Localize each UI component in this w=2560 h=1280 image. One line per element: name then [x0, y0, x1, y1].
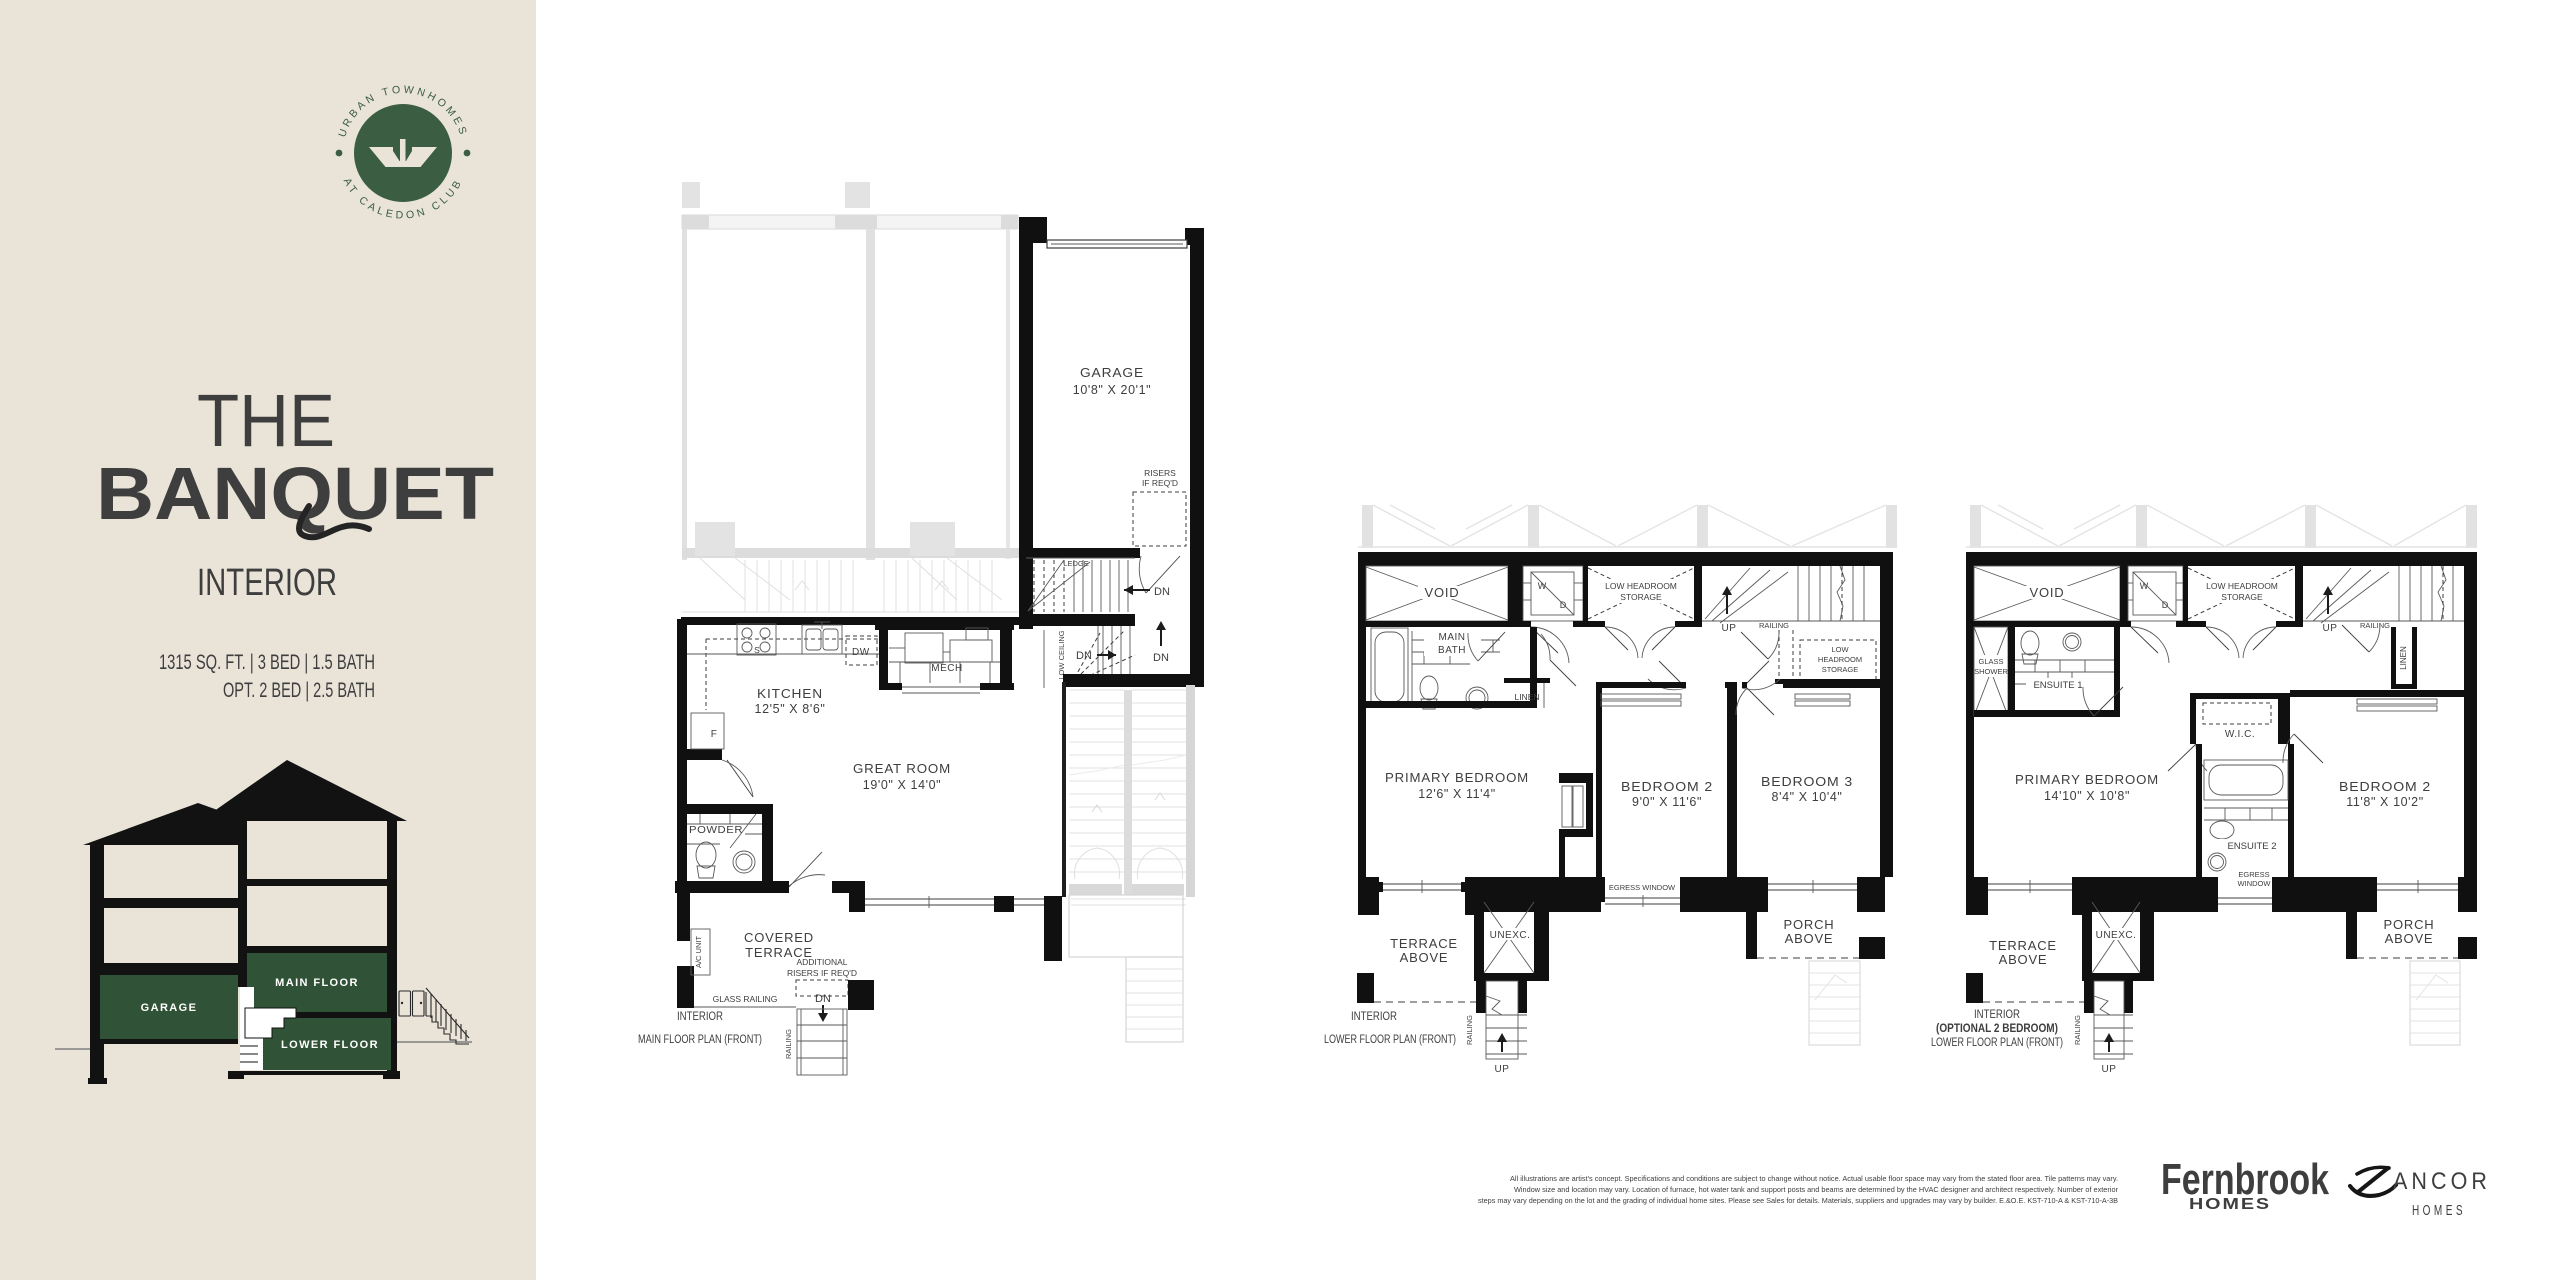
svg-text:INTERIOR: INTERIOR — [1351, 1011, 1397, 1023]
svg-text:HOMES: HOMES — [2189, 1196, 2271, 1213]
svg-text:ABOVE: ABOVE — [2385, 931, 2434, 946]
svg-text:DN: DN — [1076, 650, 1092, 662]
svg-text:RAILING: RAILING — [2073, 1015, 2082, 1045]
svg-text:STORAGE: STORAGE — [1822, 665, 1859, 674]
svg-text:BEDROOM 3: BEDROOM 3 — [1761, 774, 1853, 789]
svg-text:S: S — [754, 645, 760, 655]
svg-text:KITCHEN: KITCHEN — [757, 686, 823, 701]
svg-text:ENSUITE 1: ENSUITE 1 — [2033, 680, 2082, 691]
svg-text:TERRACE: TERRACE — [1989, 938, 2057, 953]
svg-text:ANCOR: ANCOR — [2393, 1168, 2491, 1195]
svg-text:POWDER: POWDER — [689, 825, 743, 836]
svg-text:W: W — [2140, 581, 2149, 591]
svg-text:HEADROOM: HEADROOM — [1818, 655, 1862, 664]
svg-text:LOW HEADROOM: LOW HEADROOM — [2206, 581, 2278, 591]
svg-text:ENSUITE 2: ENSUITE 2 — [2227, 841, 2276, 852]
svg-text:LEDGE: LEDGE — [1063, 559, 1088, 568]
svg-text:RAILING: RAILING — [1465, 1015, 1474, 1045]
svg-text:A/C UNIT: A/C UNIT — [694, 936, 703, 969]
svg-text:W: W — [1538, 581, 1547, 591]
svg-text:LOWER FLOOR PLAN (FRONT): LOWER FLOOR PLAN (FRONT) — [1931, 1037, 2063, 1049]
svg-text:D: D — [1560, 600, 1567, 610]
svg-text:UNEXC.: UNEXC. — [1490, 930, 1531, 941]
svg-text:RISERS IF REQ'D: RISERS IF REQ'D — [787, 968, 857, 978]
svg-text:GREAT ROOM: GREAT ROOM — [853, 761, 951, 776]
svg-text:STORAGE: STORAGE — [1620, 592, 1662, 602]
svg-text:BANQUET: BANQUET — [96, 452, 494, 535]
svg-text:WINDOW: WINDOW — [2238, 879, 2272, 888]
svg-text:BEDROOM 2: BEDROOM 2 — [1621, 779, 1713, 794]
svg-text:ABOVE: ABOVE — [1999, 952, 2048, 967]
svg-text:PORCH: PORCH — [2384, 917, 2435, 932]
svg-text:D: D — [2162, 600, 2169, 610]
svg-text:F: F — [711, 729, 718, 740]
svg-text:IF REQ'D: IF REQ'D — [1142, 478, 1178, 488]
svg-text:1315 SQ. FT. | 3 BED | 1.5: 1315 SQ. FT. | 3 BED | 1.5 BATH — [159, 651, 375, 674]
svg-text:ADDITIONAL: ADDITIONAL — [796, 957, 847, 967]
svg-text:(OPTIONAL 2 BEDROOM): (OPTIONAL 2 BEDROOM) — [1936, 1023, 2058, 1035]
svg-text:GARAGE: GARAGE — [141, 1002, 198, 1014]
svg-text:BEDROOM 2: BEDROOM 2 — [2339, 779, 2431, 794]
svg-text:GARAGE: GARAGE — [1080, 365, 1144, 380]
svg-text:LINEN: LINEN — [2399, 646, 2408, 670]
svg-text:9'0" X 11'6": 9'0" X 11'6" — [1632, 795, 1702, 809]
svg-text:DW: DW — [852, 647, 870, 658]
svg-text:HOMES: HOMES — [2412, 1203, 2466, 1219]
svg-text:INTERIOR: INTERIOR — [1974, 1009, 2020, 1021]
svg-text:UNEXC.: UNEXC. — [2096, 930, 2137, 941]
svg-text:DN: DN — [1154, 586, 1170, 598]
svg-text:12'6" X 11'4": 12'6" X 11'4" — [1418, 787, 1496, 801]
svg-text:EGRESS: EGRESS — [2238, 870, 2269, 879]
svg-text:W.I.C.: W.I.C. — [2225, 729, 2255, 740]
svg-text:19'0" X 14'0": 19'0" X 14'0" — [863, 778, 941, 792]
svg-text:VOID: VOID — [2030, 585, 2065, 600]
svg-text:All illustrations are artist's: All illustrations are artist's concept. … — [1510, 1174, 2118, 1183]
svg-text:12'5" X 8'6": 12'5" X 8'6" — [755, 702, 826, 716]
svg-text:LOW CEILING: LOW CEILING — [1057, 630, 1066, 679]
svg-text:OPT. 2 BED | 2.5 BATH: OPT. 2 BED | 2.5 BATH — [223, 679, 375, 702]
svg-text:THE: THE — [197, 379, 335, 462]
svg-text:INTERIOR: INTERIOR — [197, 562, 337, 604]
svg-text:UP: UP — [1722, 623, 1737, 634]
svg-text:COVERED: COVERED — [744, 930, 814, 945]
svg-text:DN: DN — [815, 993, 831, 1005]
svg-text:TERRACE: TERRACE — [1390, 936, 1458, 951]
svg-text:ABOVE: ABOVE — [1785, 931, 1834, 946]
svg-text:Window size and location may v: Window size and location may vary. Locat… — [1514, 1185, 2119, 1194]
svg-text:PORCH: PORCH — [1784, 917, 1835, 932]
svg-text:UP: UP — [2102, 1064, 2117, 1075]
svg-text:11'8" X 10'2": 11'8" X 10'2" — [2346, 795, 2424, 809]
svg-text:GLASS RAILING: GLASS RAILING — [713, 994, 778, 1004]
svg-text:MAIN: MAIN — [1439, 632, 1466, 643]
svg-text:VOID: VOID — [1425, 585, 1460, 600]
svg-text:INTERIOR: INTERIOR — [677, 1011, 723, 1023]
svg-text:DN: DN — [1153, 652, 1169, 664]
svg-text:MECH: MECH — [931, 663, 962, 674]
svg-text:STORAGE: STORAGE — [2221, 592, 2263, 602]
svg-text:UP: UP — [2323, 623, 2338, 634]
svg-text:RAILING: RAILING — [784, 1029, 793, 1059]
svg-text:ABOVE: ABOVE — [1400, 950, 1449, 965]
svg-text:LOW: LOW — [1831, 645, 1849, 654]
svg-text:RAILING: RAILING — [2360, 621, 2390, 630]
svg-text:GLASS: GLASS — [1978, 657, 2003, 666]
svg-text:MAIN FLOOR PLAN (FRONT): MAIN FLOOR PLAN (FRONT) — [638, 1034, 762, 1046]
svg-text:steps may vary depending on th: steps may vary depending on the lot and … — [1478, 1196, 2118, 1205]
svg-text:SHOWER: SHOWER — [1974, 667, 2008, 676]
svg-text:PRIMARY BEDROOM: PRIMARY BEDROOM — [1385, 770, 1529, 785]
svg-text:RISERS: RISERS — [1144, 468, 1176, 478]
svg-text:14'10" X 10'8": 14'10" X 10'8" — [2044, 789, 2130, 803]
svg-text:LOWER FLOOR PLAN (FRONT): LOWER FLOOR PLAN (FRONT) — [1324, 1034, 1456, 1046]
svg-text:10'8" X 20'1": 10'8" X 20'1" — [1073, 383, 1151, 397]
svg-text:UP: UP — [1495, 1064, 1510, 1075]
svg-text:8'4" X 10'4": 8'4" X 10'4" — [1772, 790, 1843, 804]
svg-text:PRIMARY BEDROOM: PRIMARY BEDROOM — [2015, 772, 2159, 787]
svg-text:BATH: BATH — [1438, 645, 1466, 656]
svg-text:LOWER FLOOR: LOWER FLOOR — [281, 1039, 379, 1051]
svg-text:LOW HEADROOM: LOW HEADROOM — [1605, 581, 1677, 591]
svg-text:LINEN: LINEN — [1514, 692, 1539, 702]
svg-text:MAIN FLOOR: MAIN FLOOR — [275, 977, 359, 989]
svg-text:RAILING: RAILING — [1759, 621, 1789, 630]
svg-text:EGRESS WINDOW: EGRESS WINDOW — [1609, 883, 1676, 892]
